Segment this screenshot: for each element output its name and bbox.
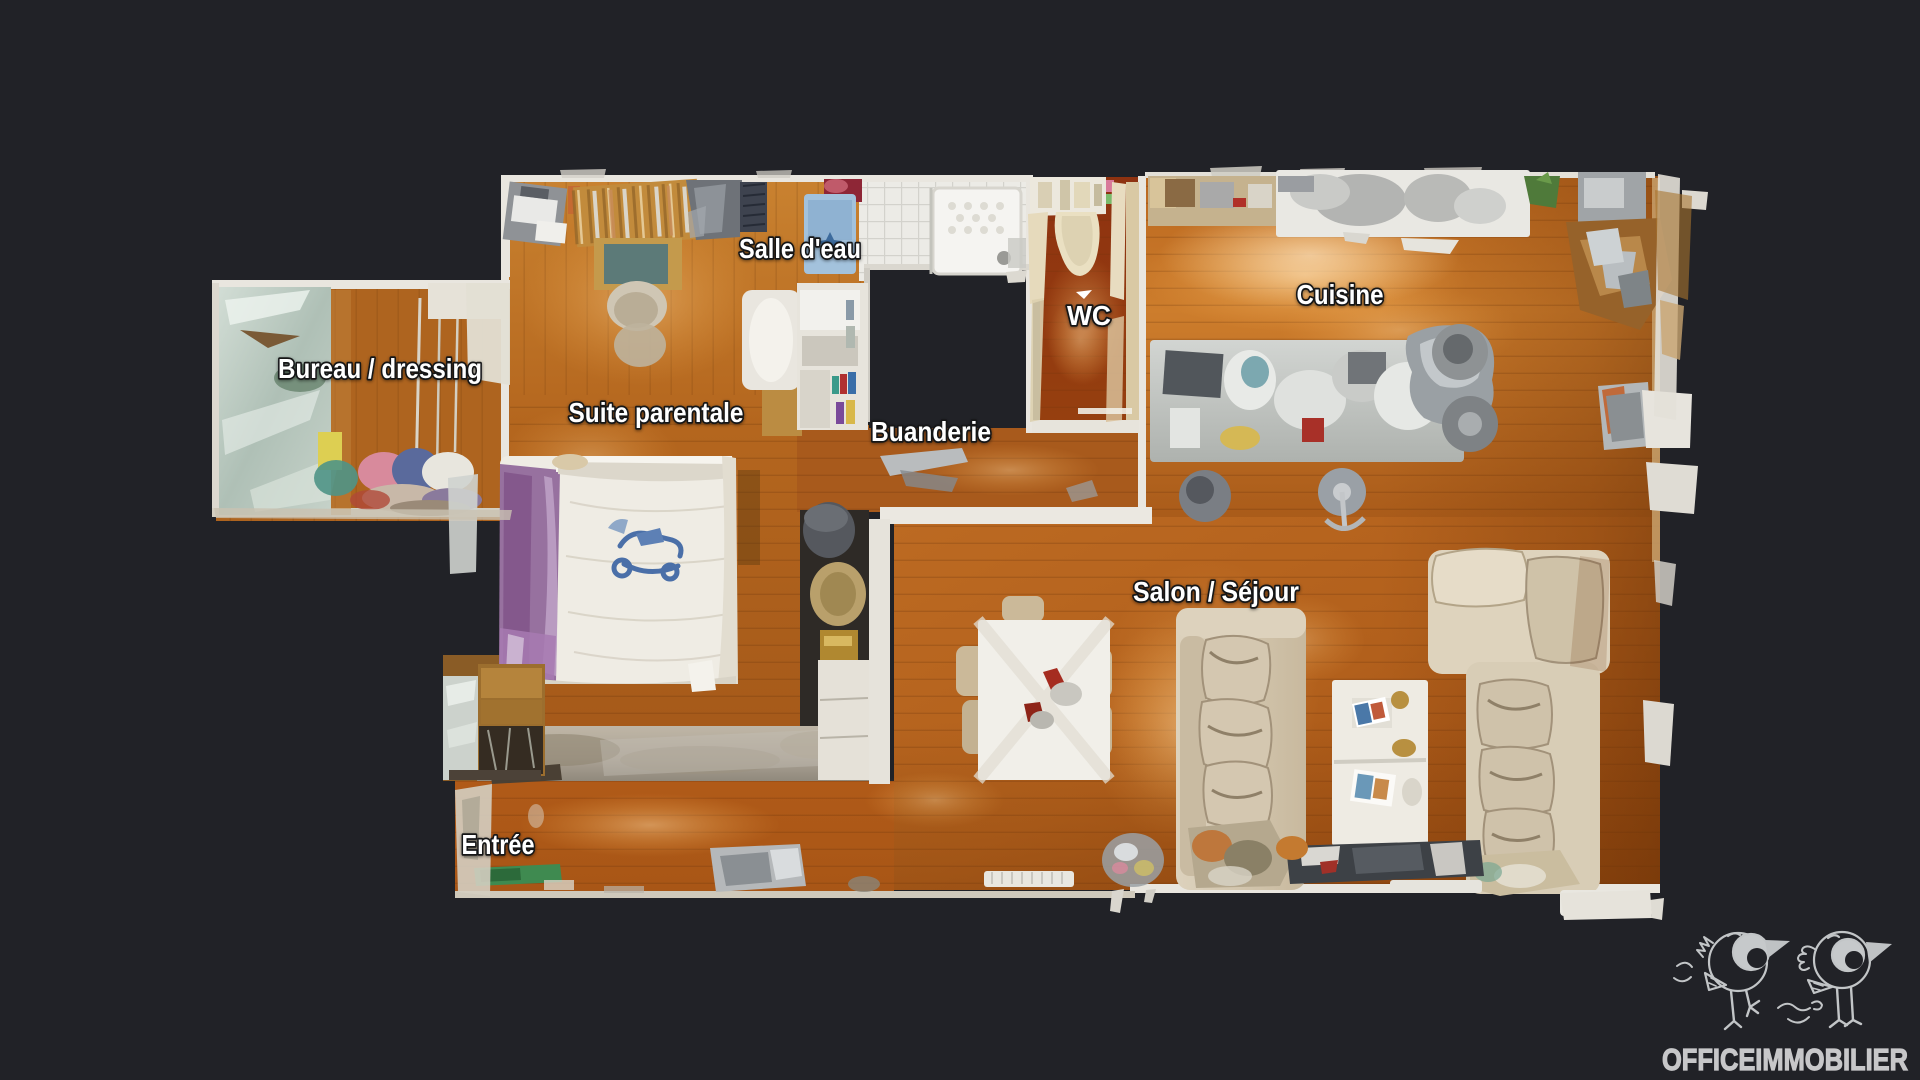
svg-text:Salle d'eau: Salle d'eau: [739, 233, 861, 264]
svg-text:Salon / Séjour: Salon / Séjour: [1133, 576, 1299, 607]
svg-text:OFFICEIMMOBILIER: OFFICEIMMOBILIER: [1662, 1042, 1908, 1077]
svg-text:Entrée: Entrée: [462, 829, 535, 860]
svg-text:WC: WC: [1067, 300, 1111, 331]
svg-text:Buanderie: Buanderie: [871, 416, 991, 447]
svg-text:Suite parentale: Suite parentale: [569, 397, 744, 428]
svg-text:Bureau / dressing: Bureau / dressing: [278, 353, 482, 384]
svg-text:Cuisine: Cuisine: [1297, 279, 1384, 310]
